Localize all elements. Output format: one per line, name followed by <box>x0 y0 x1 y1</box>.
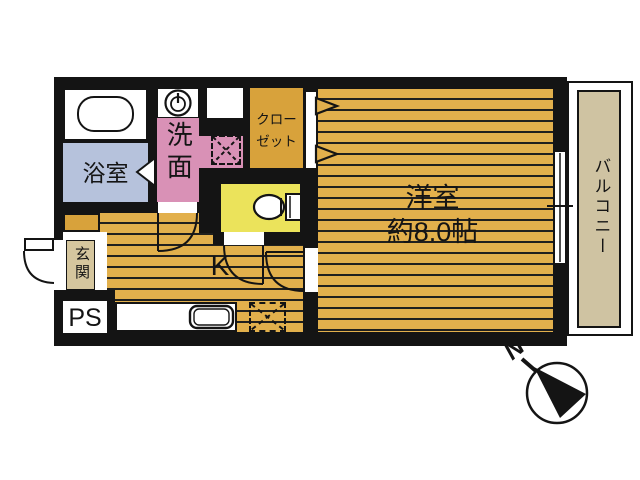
western-room-label: 洋室 約8.0帖 <box>330 182 535 250</box>
bathtub-area <box>63 88 148 141</box>
entrance-door-leaf <box>24 238 54 251</box>
bathroom-label: 浴室 <box>63 160 148 188</box>
north-arrow-icon <box>522 359 587 423</box>
shoe-cabinet <box>63 213 100 232</box>
entrance-label: 玄関 <box>72 246 90 282</box>
western-room-door-opening <box>305 248 318 292</box>
toilet-door-threshold <box>224 232 264 245</box>
washing-machine-pan <box>157 88 199 118</box>
toilet-room <box>221 184 300 232</box>
western-room-name: 洋室 <box>330 182 535 216</box>
washer-space-box <box>211 135 241 165</box>
spare-alcove <box>207 88 243 118</box>
washroom-label: 洗面 <box>162 121 193 185</box>
refrigerator-space-box <box>249 302 286 332</box>
pipe-space-label: PS <box>63 303 107 333</box>
wall-segment <box>199 118 250 136</box>
entrance-door-opening <box>54 240 64 290</box>
closet-label: クロー ゼット <box>248 109 305 154</box>
closet-label-line1: クロー <box>248 109 305 131</box>
closet-label-line2: ゼット <box>248 131 305 153</box>
floorplan-page: { "plan": { "type_note": "apartment floo… <box>0 0 640 480</box>
wall-segment <box>199 88 207 118</box>
entrance-door-swing-arc <box>24 251 54 283</box>
washroom-door-threshold <box>158 202 197 213</box>
bathtub-icon <box>77 96 134 132</box>
kitchen-counter <box>115 302 237 332</box>
balcony-label: バルコニー <box>590 157 610 257</box>
western-room-size: 約8.0帖 <box>330 216 535 250</box>
kitchen-label: K <box>202 249 238 283</box>
closet-door-track <box>306 92 316 168</box>
window-sliding <box>553 152 567 263</box>
